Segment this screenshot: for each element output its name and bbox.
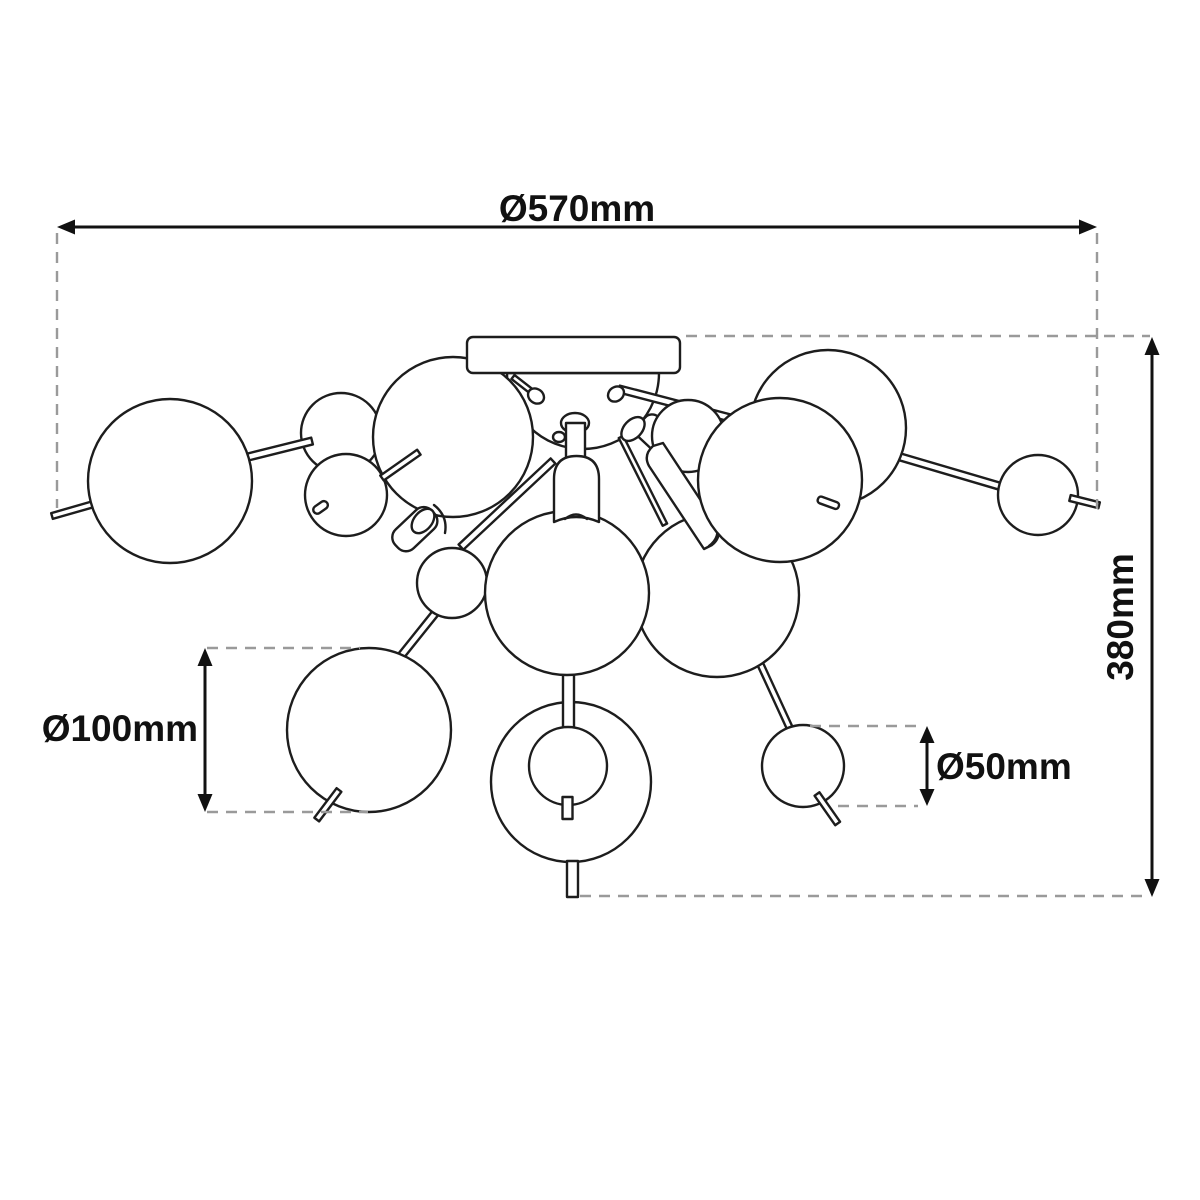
sphere-50mm xyxy=(762,725,844,807)
sphere xyxy=(373,357,533,517)
dim-label-large-sphere: Ø100mm xyxy=(42,708,198,749)
sphere-100mm xyxy=(287,648,451,812)
socket-tab xyxy=(553,432,565,442)
arrowhead-right xyxy=(1079,220,1097,235)
dim-label-overall-width: Ø570mm xyxy=(499,188,655,229)
arm-rod xyxy=(896,453,1007,492)
arm-rod xyxy=(247,438,313,461)
bulb-stub xyxy=(563,797,573,819)
central-bell-shade xyxy=(554,456,599,522)
arrowhead-down xyxy=(920,789,935,806)
sphere xyxy=(88,399,252,563)
arrowhead-up xyxy=(198,648,213,666)
dim-label-overall-height: 380mm xyxy=(1100,553,1141,681)
arrowhead-up xyxy=(1145,337,1160,355)
lamp-dimension-diagram: Ø570mm 380mm Ø100mm Ø50mm xyxy=(0,0,1200,1200)
sphere xyxy=(998,455,1078,535)
bottom-stem xyxy=(567,861,578,897)
canopy-plate xyxy=(467,337,680,373)
inner-bulb xyxy=(529,727,607,805)
dim-label-small-sphere: Ø50mm xyxy=(936,746,1072,787)
sphere xyxy=(417,548,487,618)
arrowhead-left xyxy=(57,220,75,235)
sphere xyxy=(485,511,649,675)
arrowhead-down xyxy=(1145,879,1160,897)
sphere xyxy=(698,398,862,562)
sphere xyxy=(305,454,387,536)
arrowhead-up xyxy=(920,726,935,743)
arrowhead-down xyxy=(198,794,213,812)
dimension-drawing-page: Ø570mm 380mm Ø100mm Ø50mm xyxy=(0,0,1200,1200)
